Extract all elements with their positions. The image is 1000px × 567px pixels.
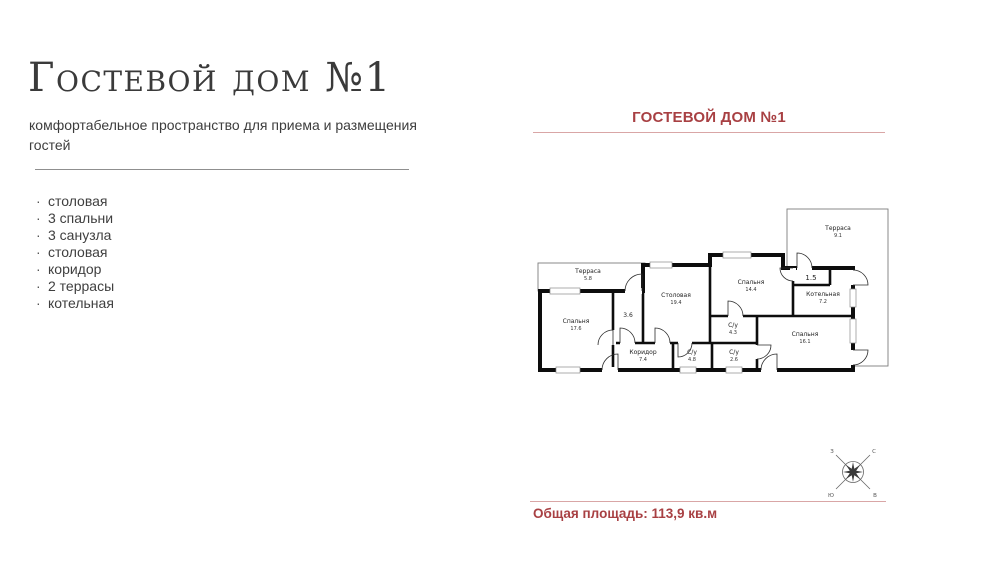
list-item: · коридор	[36, 260, 114, 277]
room-area: 17.6	[570, 326, 581, 332]
room-label: С/у	[728, 322, 738, 329]
room-area: 2.6	[730, 357, 738, 363]
feature-label: столовая	[48, 244, 108, 260]
list-item: · 3 санузла	[36, 226, 114, 243]
page-title: Гостевой дом №1	[28, 58, 392, 98]
room-area: 16.1	[799, 339, 810, 345]
bullet-icon: ·	[36, 244, 48, 260]
feature-label: 3 санузла	[48, 227, 111, 243]
room-label: С/у	[729, 349, 739, 356]
bullet-icon: ·	[36, 210, 48, 226]
compass-east-label: В	[873, 493, 877, 499]
feature-label: 2 террасы	[48, 278, 114, 294]
room-label: Столовая	[661, 292, 691, 299]
room-area: 14.4	[745, 287, 756, 293]
page-subtitle: комфортабельное пространство для приема …	[29, 115, 461, 156]
bullet-icon: ·	[36, 295, 48, 311]
feature-label: коридор	[48, 261, 101, 277]
room-label: Коридор	[629, 349, 656, 356]
compass-rose-icon: З С Ю В	[827, 444, 879, 500]
bullet-icon: ·	[36, 227, 48, 243]
room-label: Котельная	[806, 291, 840, 298]
list-item: · котельная	[36, 294, 114, 311]
feature-label: столовая	[48, 193, 108, 209]
bullet-icon: ·	[36, 261, 48, 277]
bullet-icon: ·	[36, 193, 48, 209]
room-area: 19.4	[670, 300, 681, 306]
room-area: 9.1	[834, 233, 842, 239]
list-item: · столовая	[36, 243, 114, 260]
room-label: С/у	[687, 349, 697, 356]
compass-north-label: С	[872, 449, 876, 455]
feature-label: 3 спальни	[48, 210, 113, 226]
plan-title: ГОСТЕВОЙ ДОМ №1	[533, 109, 885, 133]
total-area-footer: Общая площадь: 113,9 кв.м	[530, 501, 886, 521]
room-label: Спальня	[792, 331, 819, 338]
divider-line	[35, 169, 409, 170]
room-area: 4.8	[688, 357, 696, 363]
room-area: 7.4	[639, 357, 647, 363]
room-area: 3.6	[623, 312, 633, 319]
room-label: Терраса	[574, 268, 601, 275]
floorplan-image: Терраса 5.8 Спальня 17.6 3.6 Столовая 19…	[530, 193, 900, 380]
list-item: · столовая	[36, 192, 114, 209]
bullet-icon: ·	[36, 278, 48, 294]
feature-list: · столовая · 3 спальни · 3 санузла · сто…	[36, 192, 114, 311]
total-area-label: Общая площадь: 113,9 кв.м	[530, 506, 717, 521]
list-item: · 2 террасы	[36, 277, 114, 294]
list-item: · 3 спальни	[36, 209, 114, 226]
compass-south-label: Ю	[828, 493, 834, 499]
compass-west-label: З	[830, 449, 834, 455]
slide: Гостевой дом №1 комфортабельное простран…	[0, 0, 1000, 567]
room-area: 1.5	[805, 274, 816, 282]
room-label: Спальня	[738, 279, 765, 286]
room-area: 4.3	[729, 330, 737, 336]
room-label: Терраса	[824, 225, 851, 232]
room-label: Спальня	[563, 318, 590, 325]
feature-label: котельная	[48, 295, 114, 311]
room-area: 7.2	[819, 299, 827, 305]
room-area: 5.8	[584, 276, 592, 282]
